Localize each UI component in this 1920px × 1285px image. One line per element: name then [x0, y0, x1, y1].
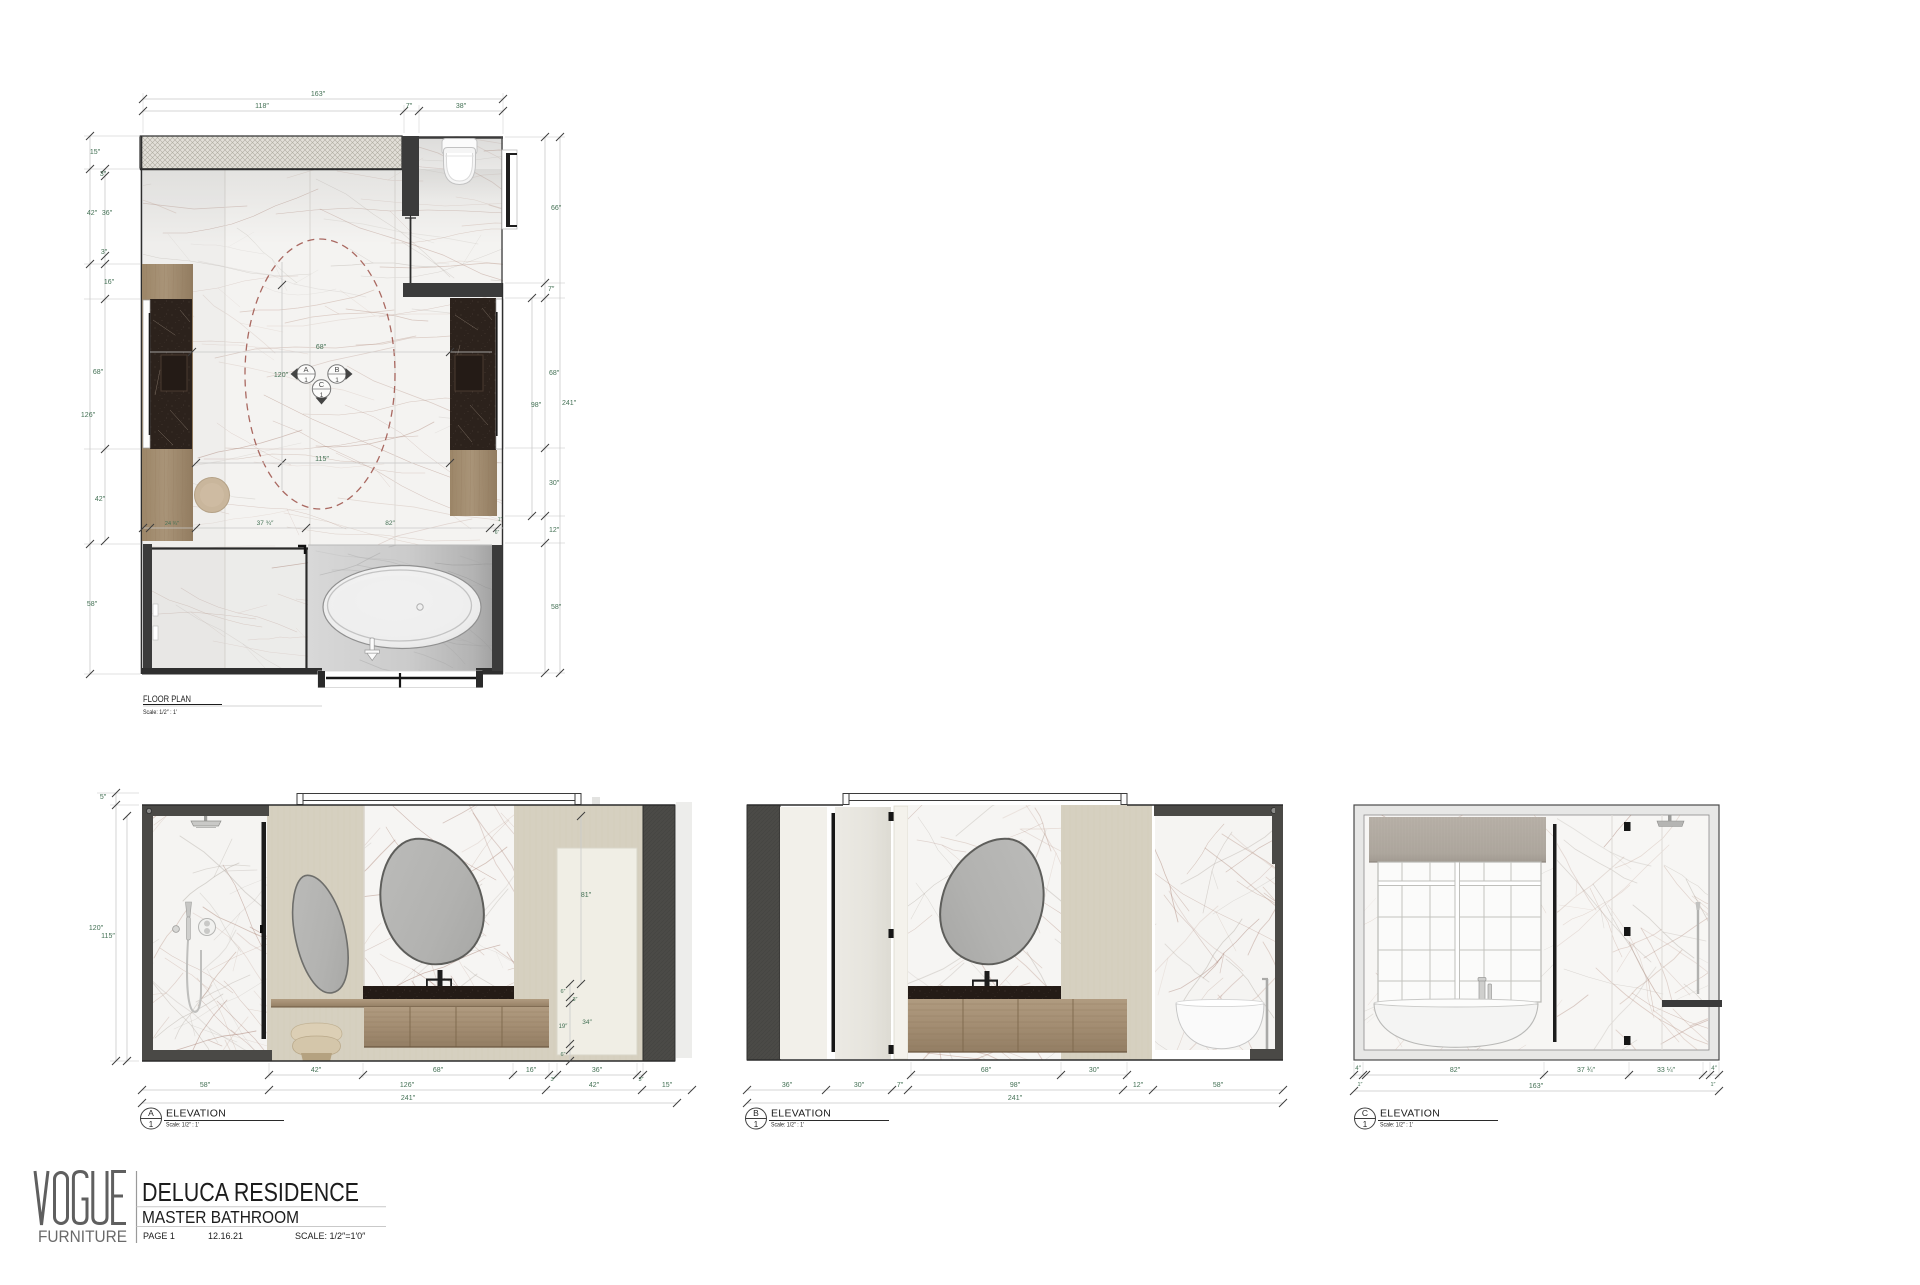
svg-text:15″: 15″	[662, 1082, 673, 1089]
svg-text:42″: 42″	[87, 210, 98, 217]
svg-text:24 ¾″: 24 ¾″	[165, 521, 179, 527]
svg-text:ELEVATION: ELEVATION	[771, 1108, 831, 1120]
svg-text:81″: 81″	[581, 892, 592, 899]
svg-text:1: 1	[149, 1120, 154, 1129]
svg-text:4″: 4″	[1711, 1066, 1717, 1072]
svg-text:30″: 30″	[1089, 1067, 1100, 1074]
svg-text:30″: 30″	[549, 480, 560, 487]
svg-text:68″: 68″	[316, 344, 327, 351]
svg-text:3″: 3″	[101, 249, 108, 256]
svg-text:37 ¾″: 37 ¾″	[257, 520, 274, 527]
svg-text:58″: 58″	[1213, 1082, 1224, 1089]
svg-text:68″: 68″	[549, 370, 560, 377]
svg-text:4″: 4″	[1355, 1066, 1361, 1072]
svg-text:126″: 126″	[81, 412, 96, 419]
svg-text:1″: 1″	[498, 517, 503, 523]
svg-text:36″: 36″	[782, 1082, 793, 1089]
svg-text:38″: 38″	[456, 103, 467, 110]
svg-text:1: 1	[304, 377, 308, 384]
svg-text:16″: 16″	[104, 279, 115, 286]
svg-text:C: C	[319, 380, 325, 389]
svg-text:ELEVATION: ELEVATION	[1380, 1108, 1440, 1120]
svg-text:DELUCA RESIDENCE: DELUCA RESIDENCE	[142, 1179, 359, 1207]
svg-text:82″: 82″	[385, 520, 395, 527]
svg-text:118″: 118″	[255, 103, 269, 110]
svg-text:12″: 12″	[549, 527, 560, 534]
svg-text:163″: 163″	[311, 91, 326, 98]
svg-text:58″: 58″	[87, 601, 98, 608]
svg-text:12.16.21: 12.16.21	[208, 1231, 243, 1241]
svg-text:241″: 241″	[1008, 1095, 1023, 1102]
svg-text:98″: 98″	[1010, 1082, 1021, 1089]
svg-text:1″: 1″	[1710, 1082, 1715, 1088]
svg-text:36″: 36″	[592, 1067, 603, 1074]
svg-text:1: 1	[1363, 1120, 1368, 1129]
svg-text:Scale: 1/2″ : 1′: Scale: 1/2″ : 1′	[771, 1123, 805, 1129]
svg-text:58″: 58″	[200, 1082, 211, 1089]
svg-text:82″: 82″	[1450, 1067, 1461, 1074]
svg-text:42″: 42″	[589, 1082, 600, 1089]
svg-text:37 ¾″: 37 ¾″	[1577, 1067, 1596, 1074]
svg-text:B: B	[753, 1108, 759, 1118]
svg-text:B: B	[334, 365, 339, 374]
svg-text:Scale: 1/2″ : 1′: Scale: 1/2″ : 1′	[1380, 1123, 1414, 1129]
svg-text:1″: 1″	[1357, 1082, 1362, 1088]
svg-text:SCALE: 1/2″=1′0″: SCALE: 1/2″=1′0″	[295, 1231, 366, 1241]
svg-text:15″: 15″	[90, 149, 101, 156]
svg-text:42″: 42″	[311, 1067, 322, 1074]
svg-text:C: C	[1362, 1108, 1368, 1118]
svg-text:42″: 42″	[95, 496, 106, 503]
svg-text:66″: 66″	[551, 205, 562, 212]
svg-text:163″: 163″	[1529, 1083, 1544, 1090]
svg-text:1: 1	[335, 377, 339, 384]
svg-text:36″: 36″	[102, 210, 113, 217]
svg-text:120″: 120″	[89, 925, 104, 932]
svg-text:1: 1	[754, 1120, 759, 1129]
svg-text:FURNITURE: FURNITURE	[38, 1228, 127, 1246]
svg-text:FLOOR PLAN: FLOOR PLAN	[143, 694, 191, 704]
svg-text:3″: 3″	[638, 1077, 643, 1083]
svg-text:A: A	[148, 1108, 154, 1118]
svg-text:120″: 120″	[274, 372, 289, 379]
svg-text:68″: 68″	[433, 1067, 444, 1074]
svg-text:16″: 16″	[526, 1067, 537, 1074]
svg-text:6″: 6″	[560, 989, 565, 995]
svg-text:ELEVATION: ELEVATION	[166, 1108, 226, 1120]
svg-text:241″: 241″	[562, 400, 577, 407]
svg-text:115″: 115″	[315, 456, 329, 463]
svg-text:68″: 68″	[93, 369, 104, 376]
svg-text:7″: 7″	[548, 286, 555, 293]
svg-text:MASTER BATHROOM: MASTER BATHROOM	[142, 1207, 299, 1227]
svg-text:PAGE 1: PAGE 1	[143, 1231, 175, 1241]
svg-text:Scale: 1/2″ : 1′: Scale: 1/2″ : 1′	[166, 1123, 200, 1129]
svg-text:6″: 6″	[560, 1052, 565, 1058]
svg-text:30″: 30″	[854, 1082, 865, 1089]
svg-text:6″: 6″	[495, 530, 500, 536]
svg-text:34″: 34″	[582, 1019, 592, 1026]
svg-text:19″: 19″	[559, 1024, 569, 1030]
svg-text:126″: 126″	[400, 1082, 415, 1089]
svg-text:5″: 5″	[100, 794, 107, 801]
svg-text:68″: 68″	[981, 1067, 992, 1074]
svg-text:3″: 3″	[100, 171, 107, 178]
svg-text:115″: 115″	[101, 933, 115, 940]
svg-text:98″: 98″	[531, 402, 542, 409]
svg-text:3″: 3″	[550, 1077, 555, 1083]
svg-text:33 ¼″: 33 ¼″	[1657, 1067, 1676, 1074]
svg-text:3″: 3″	[572, 997, 577, 1003]
svg-text:7″: 7″	[406, 103, 413, 110]
svg-text:Scale: 1/2″ : 1′: Scale: 1/2″ : 1′	[143, 710, 178, 716]
svg-text:A: A	[303, 365, 308, 374]
svg-text:58″: 58″	[551, 604, 562, 611]
svg-text:12″: 12″	[1133, 1082, 1144, 1089]
svg-text:241″: 241″	[401, 1095, 416, 1102]
svg-text:7″: 7″	[897, 1082, 904, 1089]
